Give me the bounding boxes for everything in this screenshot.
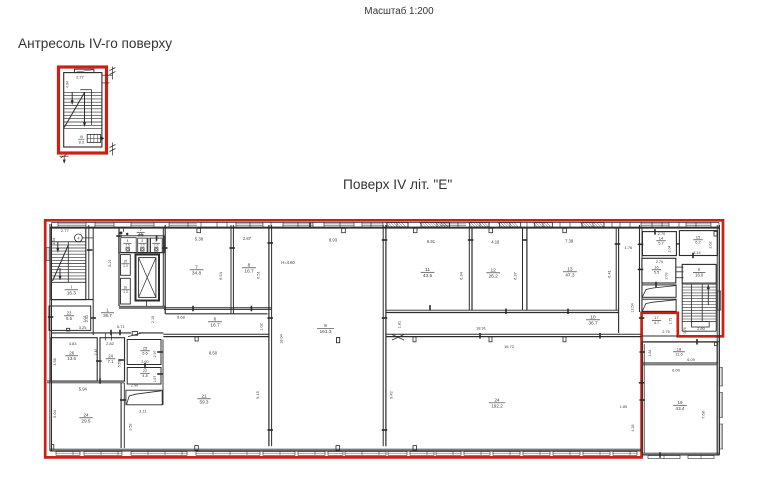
svg-text:ІІІ: ІІІ xyxy=(80,135,83,139)
svg-text:18: 18 xyxy=(677,346,682,351)
svg-text:4: 4 xyxy=(127,239,129,243)
svg-text:1.5: 1.5 xyxy=(125,243,130,247)
svg-text:2.80: 2.80 xyxy=(697,326,706,331)
svg-text:7: 7 xyxy=(195,264,198,270)
svg-text:19: 19 xyxy=(677,400,683,405)
svg-text:3.56: 3.56 xyxy=(53,358,57,365)
svg-text:5.55: 5.55 xyxy=(118,361,122,368)
svg-text:24: 24 xyxy=(494,397,500,402)
svg-text:13: 13 xyxy=(567,266,573,272)
svg-text:11.6: 11.6 xyxy=(675,352,683,357)
svg-text:4.28: 4.28 xyxy=(631,425,635,432)
svg-text:5.78: 5.78 xyxy=(683,327,687,334)
svg-text:8.93: 8.93 xyxy=(329,238,338,243)
svg-text:25: 25 xyxy=(143,345,148,350)
svg-text:26.2: 26.2 xyxy=(489,274,499,280)
svg-text:1.02: 1.02 xyxy=(259,323,263,330)
svg-text:5.7: 5.7 xyxy=(658,241,664,246)
svg-text:6.2: 6.2 xyxy=(695,240,701,245)
svg-text:29.5: 29.5 xyxy=(82,418,91,423)
svg-text:16: 16 xyxy=(654,264,659,269)
svg-text:4.94: 4.94 xyxy=(65,81,69,88)
svg-text:16.7: 16.7 xyxy=(210,323,220,329)
svg-text:3.11: 3.11 xyxy=(139,409,147,414)
svg-text:26.7: 26.7 xyxy=(103,313,112,318)
svg-text:8.68: 8.68 xyxy=(177,315,186,320)
svg-text:3.25: 3.25 xyxy=(79,325,88,330)
svg-text:1.84: 1.84 xyxy=(648,350,652,357)
svg-text:8: 8 xyxy=(248,262,251,268)
svg-text:ІІ: ІІ xyxy=(698,267,700,272)
svg-text:17: 17 xyxy=(654,315,659,320)
svg-text:21: 21 xyxy=(201,393,207,398)
svg-text:11: 11 xyxy=(425,267,430,273)
svg-text:5.38: 5.38 xyxy=(195,237,204,242)
svg-text:5.21: 5.21 xyxy=(108,259,112,266)
svg-text:6.09: 6.09 xyxy=(687,358,694,362)
svg-text:2.87: 2.87 xyxy=(243,236,252,241)
svg-text:4.18: 4.18 xyxy=(491,240,500,245)
svg-text:13.6: 13.6 xyxy=(67,356,76,361)
svg-text:6.51: 6.51 xyxy=(256,270,261,279)
svg-text:4.7: 4.7 xyxy=(654,320,660,325)
svg-text:1.76: 1.76 xyxy=(625,245,634,250)
svg-text:1.73: 1.73 xyxy=(669,318,673,325)
svg-text:18.91: 18.91 xyxy=(476,326,487,331)
svg-text:6.41: 6.41 xyxy=(606,269,611,278)
svg-text:16.7: 16.7 xyxy=(244,269,254,275)
svg-text:23: 23 xyxy=(67,310,72,315)
svg-text:2.62: 2.62 xyxy=(709,242,713,249)
svg-text:161.3: 161.3 xyxy=(319,329,331,335)
svg-text:24: 24 xyxy=(108,353,113,358)
svg-text:5.94: 5.94 xyxy=(79,387,88,392)
svg-text:5.04: 5.04 xyxy=(52,409,57,418)
svg-text:9: 9 xyxy=(324,323,327,329)
svg-text:7.68: 7.68 xyxy=(701,410,706,419)
svg-text:4.8: 4.8 xyxy=(142,373,148,378)
svg-text:1.81: 1.81 xyxy=(398,321,402,328)
svg-text:59.3: 59.3 xyxy=(200,399,209,404)
svg-text:1.4: 1.4 xyxy=(123,264,128,268)
svg-text:24: 24 xyxy=(83,412,89,417)
svg-text:1.0: 1.0 xyxy=(140,243,145,247)
svg-text:2.70: 2.70 xyxy=(656,260,663,264)
svg-text:6.6: 6.6 xyxy=(142,351,148,356)
svg-text:2.97: 2.97 xyxy=(153,351,157,358)
svg-text:8.50: 8.50 xyxy=(209,351,218,356)
svg-text:36.7: 36.7 xyxy=(588,321,598,327)
svg-text:Антресоль IV-го поверху: Антресоль IV-го поверху xyxy=(18,36,172,51)
svg-text:26: 26 xyxy=(69,350,74,355)
svg-text:2.04: 2.04 xyxy=(667,246,671,253)
svg-text:3.14: 3.14 xyxy=(693,251,700,255)
svg-text:3.83: 3.83 xyxy=(69,341,78,346)
svg-text:16.3: 16.3 xyxy=(67,290,76,295)
svg-text:18.04: 18.04 xyxy=(279,334,283,344)
svg-text:43.4: 43.4 xyxy=(676,406,685,411)
svg-text:4.94: 4.94 xyxy=(52,238,56,245)
svg-text:2.42: 2.42 xyxy=(94,349,98,356)
svg-text:7.1: 7.1 xyxy=(108,359,114,364)
svg-text:2.70: 2.70 xyxy=(658,232,665,236)
svg-text:34.8: 34.8 xyxy=(192,271,202,277)
svg-text:Поверх IV літ. "Е": Поверх IV літ. "Е" xyxy=(343,177,452,192)
svg-text:2.77: 2.77 xyxy=(61,228,70,233)
svg-text:3.52: 3.52 xyxy=(128,424,132,431)
svg-text:1.0: 1.0 xyxy=(154,243,159,247)
svg-text:10: 10 xyxy=(590,314,596,320)
svg-text:2в: 2в xyxy=(124,285,128,289)
svg-text:6.54: 6.54 xyxy=(218,271,223,280)
svg-text:2.82: 2.82 xyxy=(106,341,115,346)
svg-text:5.71: 5.71 xyxy=(117,324,126,329)
svg-text:1.3: 1.3 xyxy=(123,290,128,294)
svg-text:7.39: 7.39 xyxy=(565,239,574,244)
svg-text:22: 22 xyxy=(143,368,148,373)
svg-text:5: 5 xyxy=(141,239,143,243)
svg-text:9.15: 9.15 xyxy=(255,390,260,399)
svg-text:43.5: 43.5 xyxy=(423,273,433,279)
svg-text:6.91: 6.91 xyxy=(427,239,436,244)
svg-text:2: 2 xyxy=(140,228,142,232)
svg-text:13.54: 13.54 xyxy=(631,303,635,313)
svg-text:8.3: 8.3 xyxy=(79,140,84,144)
svg-text:15: 15 xyxy=(696,234,701,239)
svg-text:12: 12 xyxy=(491,267,497,273)
svg-text:16.72: 16.72 xyxy=(504,344,515,349)
svg-text:2б: 2б xyxy=(124,259,128,263)
svg-text:5.5: 5.5 xyxy=(654,270,660,275)
svg-text:6.5: 6.5 xyxy=(66,316,72,321)
svg-text:192.2: 192.2 xyxy=(491,403,503,408)
svg-text:2.77: 2.77 xyxy=(76,74,85,79)
svg-text:16.0: 16.0 xyxy=(695,273,704,278)
svg-text:9.42: 9.42 xyxy=(389,390,394,399)
svg-text:6.34: 6.34 xyxy=(459,271,464,280)
svg-text:6: 6 xyxy=(214,316,217,322)
svg-text:6.37: 6.37 xyxy=(512,271,517,280)
svg-text:Н=4.60: Н=4.60 xyxy=(281,260,295,265)
svg-text:2.10: 2.10 xyxy=(151,316,155,323)
svg-text:47.3: 47.3 xyxy=(565,273,575,279)
svg-text:1.67: 1.67 xyxy=(153,376,157,383)
svg-text:1.89: 1.89 xyxy=(620,405,627,409)
svg-text:Масштаб 1:200: Масштаб 1:200 xyxy=(364,6,434,17)
svg-text:2.90: 2.90 xyxy=(131,383,138,387)
svg-text:6.09: 6.09 xyxy=(672,368,681,373)
svg-text:3.01: 3.01 xyxy=(83,316,87,323)
svg-text:2.76: 2.76 xyxy=(662,330,669,334)
svg-text:І: І xyxy=(71,284,72,289)
svg-text:2.03: 2.03 xyxy=(665,273,669,280)
